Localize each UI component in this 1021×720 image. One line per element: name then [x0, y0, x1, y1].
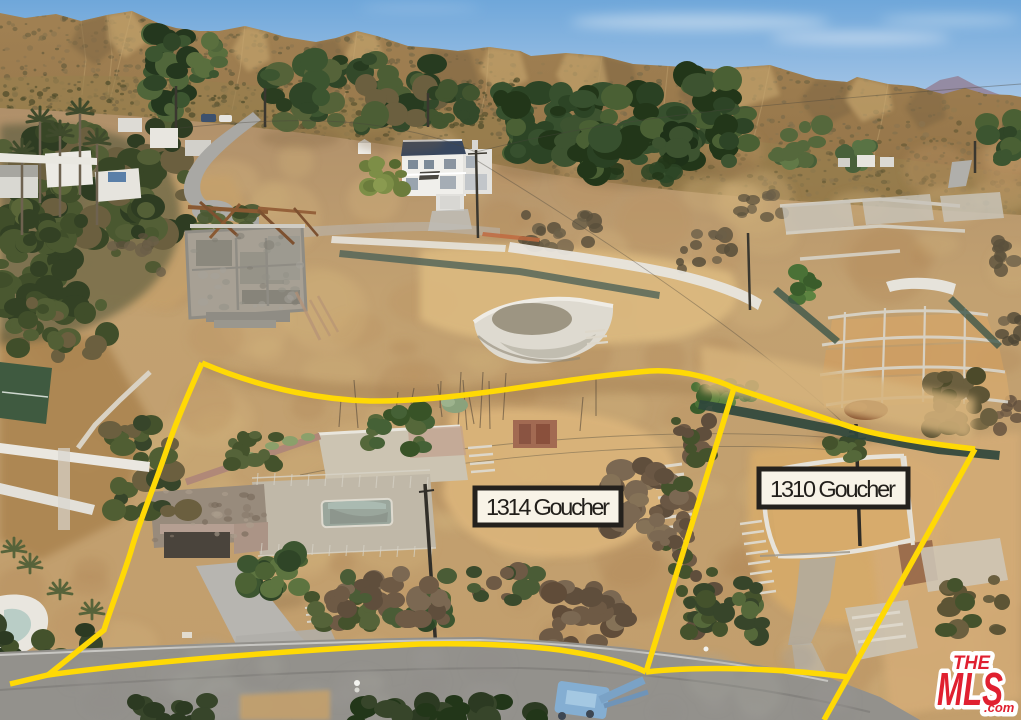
svg-text:.com: .com: [984, 700, 1015, 715]
svg-text:1310 Goucher: 1310 Goucher: [770, 476, 896, 502]
svg-text:1314 Goucher: 1314 Goucher: [486, 494, 610, 520]
